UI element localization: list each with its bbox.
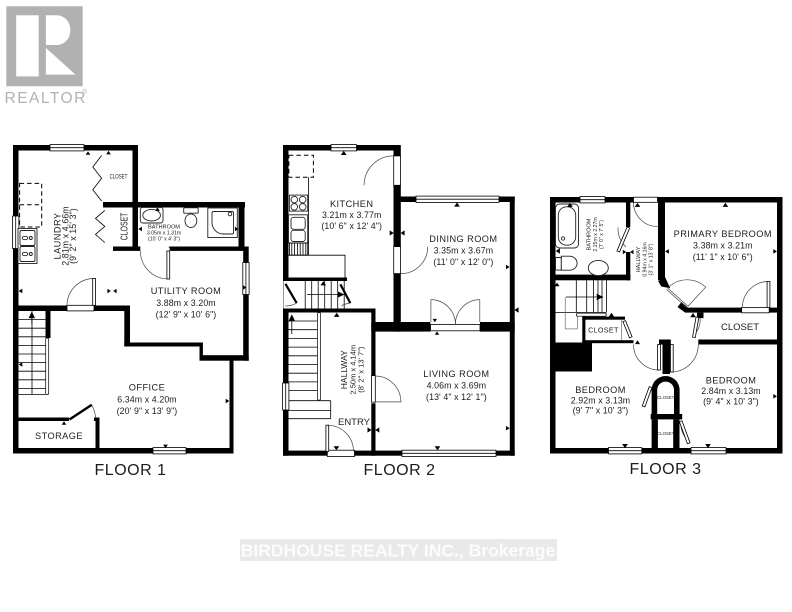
svg-text:HALLWAY: HALLWAY bbox=[339, 350, 349, 389]
svg-text:BEDROOM: BEDROOM bbox=[575, 385, 626, 395]
svg-text:6.34m x 4.20m: 6.34m x 4.20m bbox=[117, 395, 177, 405]
svg-text:(13' 4" x 12' 1"): (13' 4" x 12' 1") bbox=[426, 392, 487, 402]
svg-text:(9' 2" x 15' 3"): (9' 2" x 15' 3") bbox=[68, 208, 78, 264]
svg-text:CLOSET: CLOSET bbox=[721, 322, 759, 333]
svg-text:CLOSET: CLOSET bbox=[110, 173, 128, 180]
svg-text:(20' 9" x 13' 9"): (20' 9" x 13' 9") bbox=[117, 406, 178, 416]
svg-text:CLOSET: CLOSET bbox=[588, 326, 619, 335]
svg-text:3.38m x 3.21m: 3.38m x 3.21m bbox=[693, 241, 753, 251]
svg-text:(10' 0" x 4' 3"): (10' 0" x 4' 3") bbox=[148, 237, 180, 243]
svg-text:(12' 9" x 10' 6"): (12' 9" x 10' 6") bbox=[156, 309, 217, 319]
svg-text:FLOOR 1: FLOOR 1 bbox=[95, 462, 167, 479]
svg-text:3.21m x 3.77m: 3.21m x 3.77m bbox=[322, 210, 382, 220]
svg-text:3.05m x 1.31m: 3.05m x 1.31m bbox=[147, 231, 181, 237]
svg-text:FLOOR 3: FLOOR 3 bbox=[630, 461, 702, 478]
svg-text:(9' 7" x 10' 3"): (9' 7" x 10' 3") bbox=[573, 406, 629, 416]
svg-text:LIVING ROOM: LIVING ROOM bbox=[423, 369, 489, 379]
svg-text:BIRDHOUSE REALTY INC., Brokera: BIRDHOUSE REALTY INC., Brokerage bbox=[241, 541, 556, 561]
svg-text:®: ® bbox=[82, 88, 88, 96]
svg-text:CLOSET: CLOSET bbox=[119, 212, 131, 240]
svg-text:HALLWAY: HALLWAY bbox=[636, 246, 642, 272]
svg-text:4.06m x 3.69m: 4.06m x 3.69m bbox=[427, 381, 487, 391]
svg-text:KITCHEN: KITCHEN bbox=[330, 199, 373, 209]
svg-text:(7' 0" x 7' 5"): (7' 0" x 7' 5") bbox=[599, 220, 605, 249]
svg-text:2.84m x 3.13m: 2.84m x 3.13m bbox=[701, 386, 761, 396]
svg-text:UTILITY ROOM: UTILITY ROOM bbox=[151, 286, 222, 296]
svg-text:REALTOR: REALTOR bbox=[5, 90, 87, 107]
svg-text:DINING ROOM: DINING ROOM bbox=[429, 234, 497, 244]
svg-text:ENTRY: ENTRY bbox=[338, 417, 371, 428]
svg-text:CLOSET: CLOSET bbox=[657, 395, 675, 400]
svg-text:BATHROOM: BATHROOM bbox=[587, 218, 593, 250]
svg-text:FLOOR 2: FLOOR 2 bbox=[364, 462, 436, 479]
svg-text:2.92m x 3.13m: 2.92m x 3.13m bbox=[571, 396, 631, 406]
svg-text:STORAGE: STORAGE bbox=[35, 431, 83, 441]
svg-text:BATHROOM: BATHROOM bbox=[148, 224, 180, 230]
svg-text:CLOSET: CLOSET bbox=[657, 431, 675, 436]
svg-text:(11' 0" x 12' 0"): (11' 0" x 12' 0") bbox=[433, 257, 493, 267]
svg-text:BEDROOM: BEDROOM bbox=[706, 376, 757, 386]
svg-text:(10' 6" x 12' 4"): (10' 6" x 12' 4") bbox=[321, 221, 382, 231]
svg-text:OFFICE: OFFICE bbox=[129, 383, 165, 393]
svg-text:(3' 1" x 13' 8"): (3' 1" x 13' 8") bbox=[649, 243, 655, 275]
svg-text:3.35m x 3.67m: 3.35m x 3.67m bbox=[434, 246, 494, 256]
svg-text:(8' 2" x 13' 7"): (8' 2" x 13' 7") bbox=[357, 346, 366, 393]
svg-text:(9' 4" x 10' 3"): (9' 4" x 10' 3") bbox=[703, 397, 759, 407]
svg-text:PRIMARY BEDROOM: PRIMARY BEDROOM bbox=[674, 229, 772, 239]
svg-text:(11' 1" x 10' 6"): (11' 1" x 10' 6") bbox=[693, 252, 753, 262]
svg-text:3.88m x 3.20m: 3.88m x 3.20m bbox=[156, 298, 216, 308]
